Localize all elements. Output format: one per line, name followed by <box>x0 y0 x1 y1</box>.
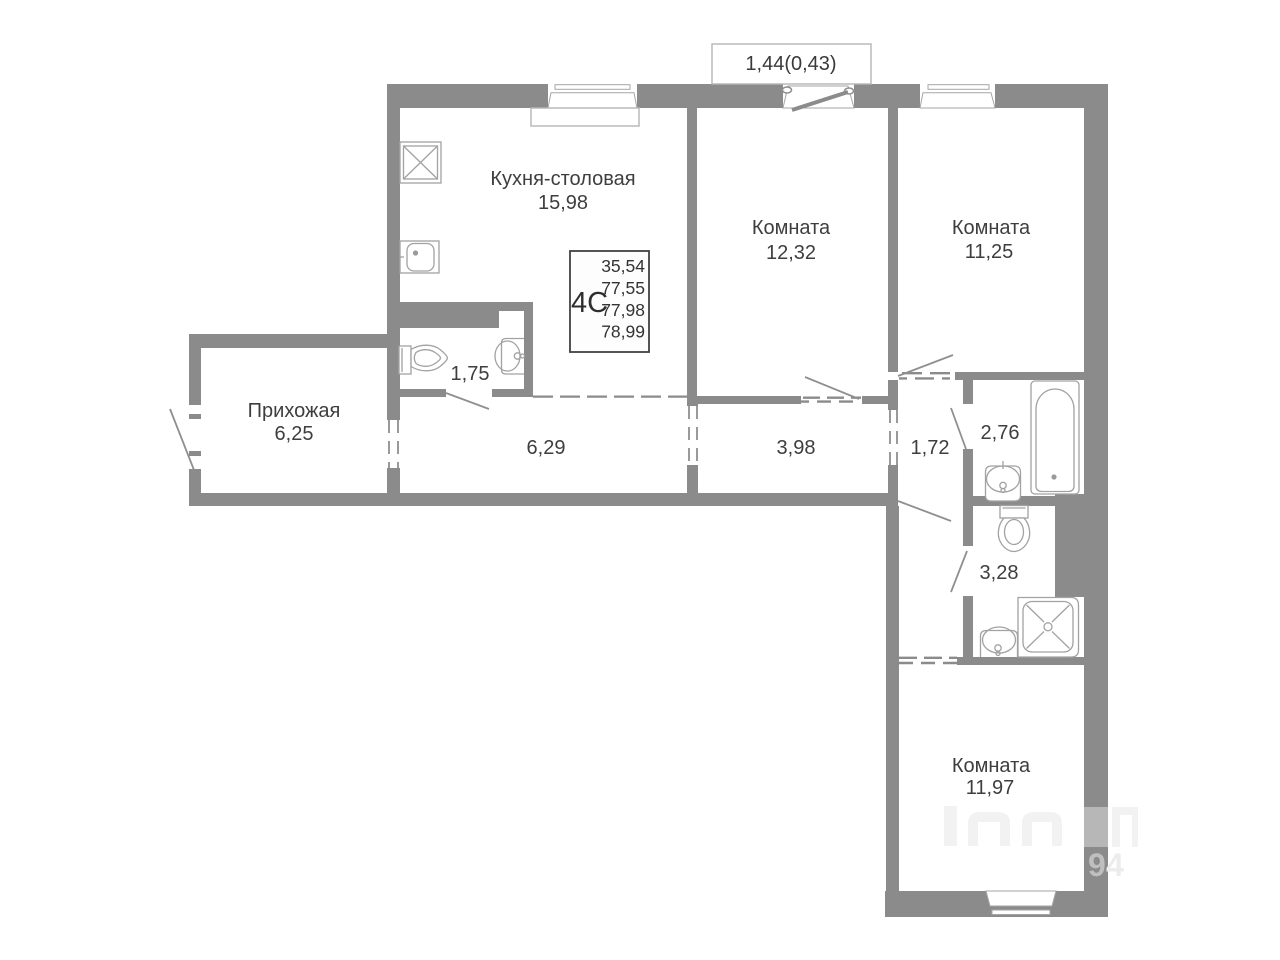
svg-text:1,72: 1,72 <box>911 437 950 459</box>
svg-text:1,44(0,43): 1,44(0,43) <box>745 53 836 75</box>
svg-text:6,25: 6,25 <box>275 423 314 445</box>
svg-text:Комната: Комната <box>952 755 1031 777</box>
svg-text:11,25: 11,25 <box>965 241 1014 263</box>
svg-text:4: 4 <box>1106 847 1124 883</box>
svg-text:Комната: Комната <box>952 217 1031 239</box>
svg-text:12,32: 12,32 <box>766 242 816 264</box>
svg-text:11,97: 11,97 <box>966 777 1015 799</box>
svg-text:Кухня-столовая: Кухня-столовая <box>490 168 635 190</box>
svg-text:6,29: 6,29 <box>527 437 566 459</box>
svg-text:Прихожая: Прихожая <box>248 400 341 422</box>
svg-text:77,98: 77,98 <box>601 300 645 320</box>
svg-text:9: 9 <box>1088 847 1106 883</box>
svg-text:Комната: Комната <box>752 217 831 239</box>
svg-text:1,75: 1,75 <box>451 363 490 385</box>
svg-text:3,28: 3,28 <box>980 562 1019 584</box>
svg-text:35,54: 35,54 <box>601 256 645 276</box>
svg-text:77,55: 77,55 <box>601 278 645 298</box>
svg-text:3,98: 3,98 <box>777 437 816 459</box>
svg-text:2,76: 2,76 <box>981 422 1020 444</box>
svg-text:15,98: 15,98 <box>538 192 588 214</box>
svg-text:78,99: 78,99 <box>601 322 645 342</box>
